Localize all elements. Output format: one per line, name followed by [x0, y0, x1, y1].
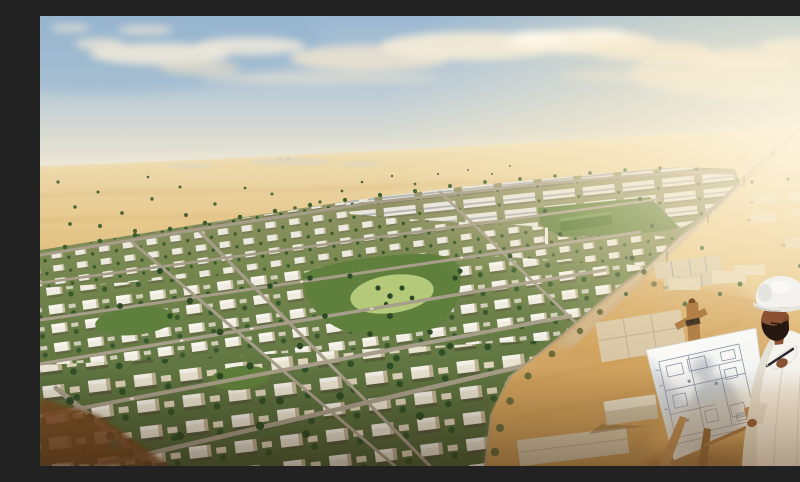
- aerial-render-scene: Aerial golden-hour rendering of a master…: [40, 16, 800, 466]
- scene-canvas: [40, 16, 800, 466]
- ear: [783, 317, 788, 322]
- foreground-shading: [40, 366, 800, 466]
